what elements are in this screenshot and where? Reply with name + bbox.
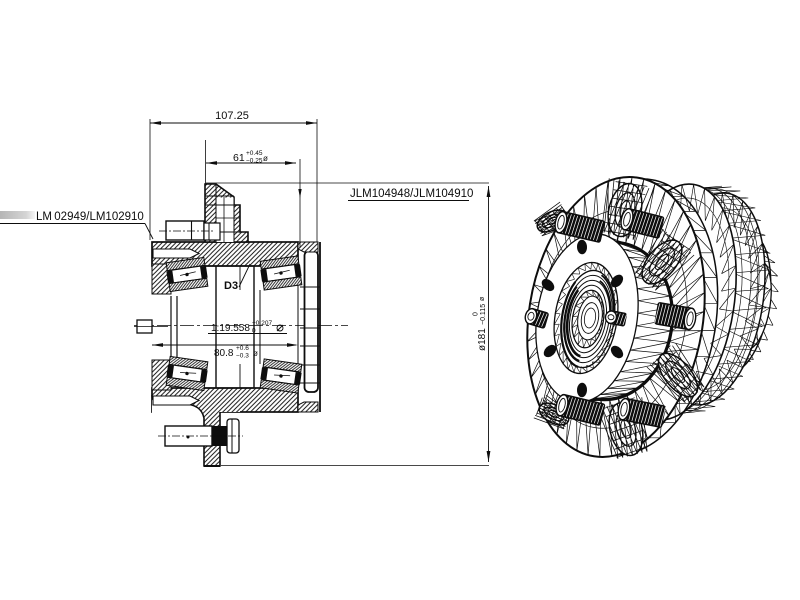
svg-text:+0.45: +0.45	[246, 150, 263, 157]
svg-text:−0.25: −0.25	[246, 158, 263, 165]
svg-text:+0.6: +0.6	[236, 345, 249, 352]
svg-text:1:19.558: 1:19.558	[211, 323, 250, 334]
svg-text:−0.3: −0.3	[236, 353, 249, 360]
svg-text:0: 0	[473, 312, 480, 316]
svg-text:D3: D3	[224, 280, 238, 292]
svg-text:61: 61	[233, 152, 245, 164]
svg-text:JLM104948/JLM104910: JLM104948/JLM104910	[350, 188, 473, 200]
svg-text:107.25: 107.25	[215, 110, 249, 122]
svg-text:−0.115: −0.115	[480, 304, 487, 325]
svg-text:ø181: ø181	[477, 328, 488, 351]
svg-text:80.8: 80.8	[214, 348, 234, 359]
svg-text:ø: ø	[479, 296, 486, 301]
svg-text:+0.207: +0.207	[252, 320, 272, 327]
svg-text:ø: ø	[263, 154, 268, 163]
svg-text:ø: ø	[253, 349, 258, 358]
svg-text:LM 02949/LM102910: LM 02949/LM102910	[36, 211, 144, 223]
